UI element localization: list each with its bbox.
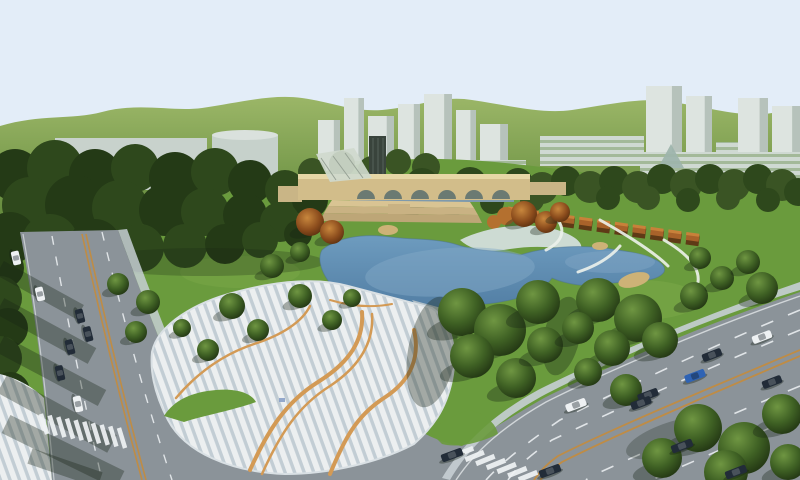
park-tree [574,358,602,386]
sand-feature [592,242,608,250]
building-cylinder-cap [212,130,278,140]
scene-rendering [0,0,800,480]
pergola-pavilion [487,215,501,229]
park-tree [288,284,312,308]
forest-tree [716,186,740,210]
park-tree [322,310,342,330]
park-tree [450,334,494,378]
plaza-kiosk [279,398,285,402]
autumn-tree [550,202,570,222]
autumn-tree [320,220,344,244]
autumn-tree [511,201,537,227]
park-rendering-stage [0,0,800,480]
park-tree [562,312,594,344]
park-tree [197,339,219,361]
park-tree [290,242,310,262]
park-tree [710,266,734,290]
park-tree [173,319,191,337]
park-tree [125,321,147,343]
park-tree [136,290,160,314]
park-tree [219,293,245,319]
forest-tree [596,186,620,210]
forest-tree [756,188,780,212]
terrace-pavilion [388,204,410,214]
park-tree [594,330,630,366]
forest-tree [636,186,660,210]
park-tree [736,250,760,274]
sand-feature [378,225,398,235]
forest-tree [676,188,700,212]
park-tree [260,254,284,278]
park-tree [746,272,778,304]
autumn-tree [296,208,324,236]
bridge-right-wing [530,182,566,195]
park-tree [516,280,560,324]
park-tree [680,282,708,310]
park-tree [107,273,129,295]
park-tree [247,319,269,341]
park-tree [343,289,361,307]
park-tree [642,322,678,358]
park-tree [689,247,711,269]
park-tree [642,438,682,478]
forest-tree [385,149,411,175]
building-base [540,136,644,166]
